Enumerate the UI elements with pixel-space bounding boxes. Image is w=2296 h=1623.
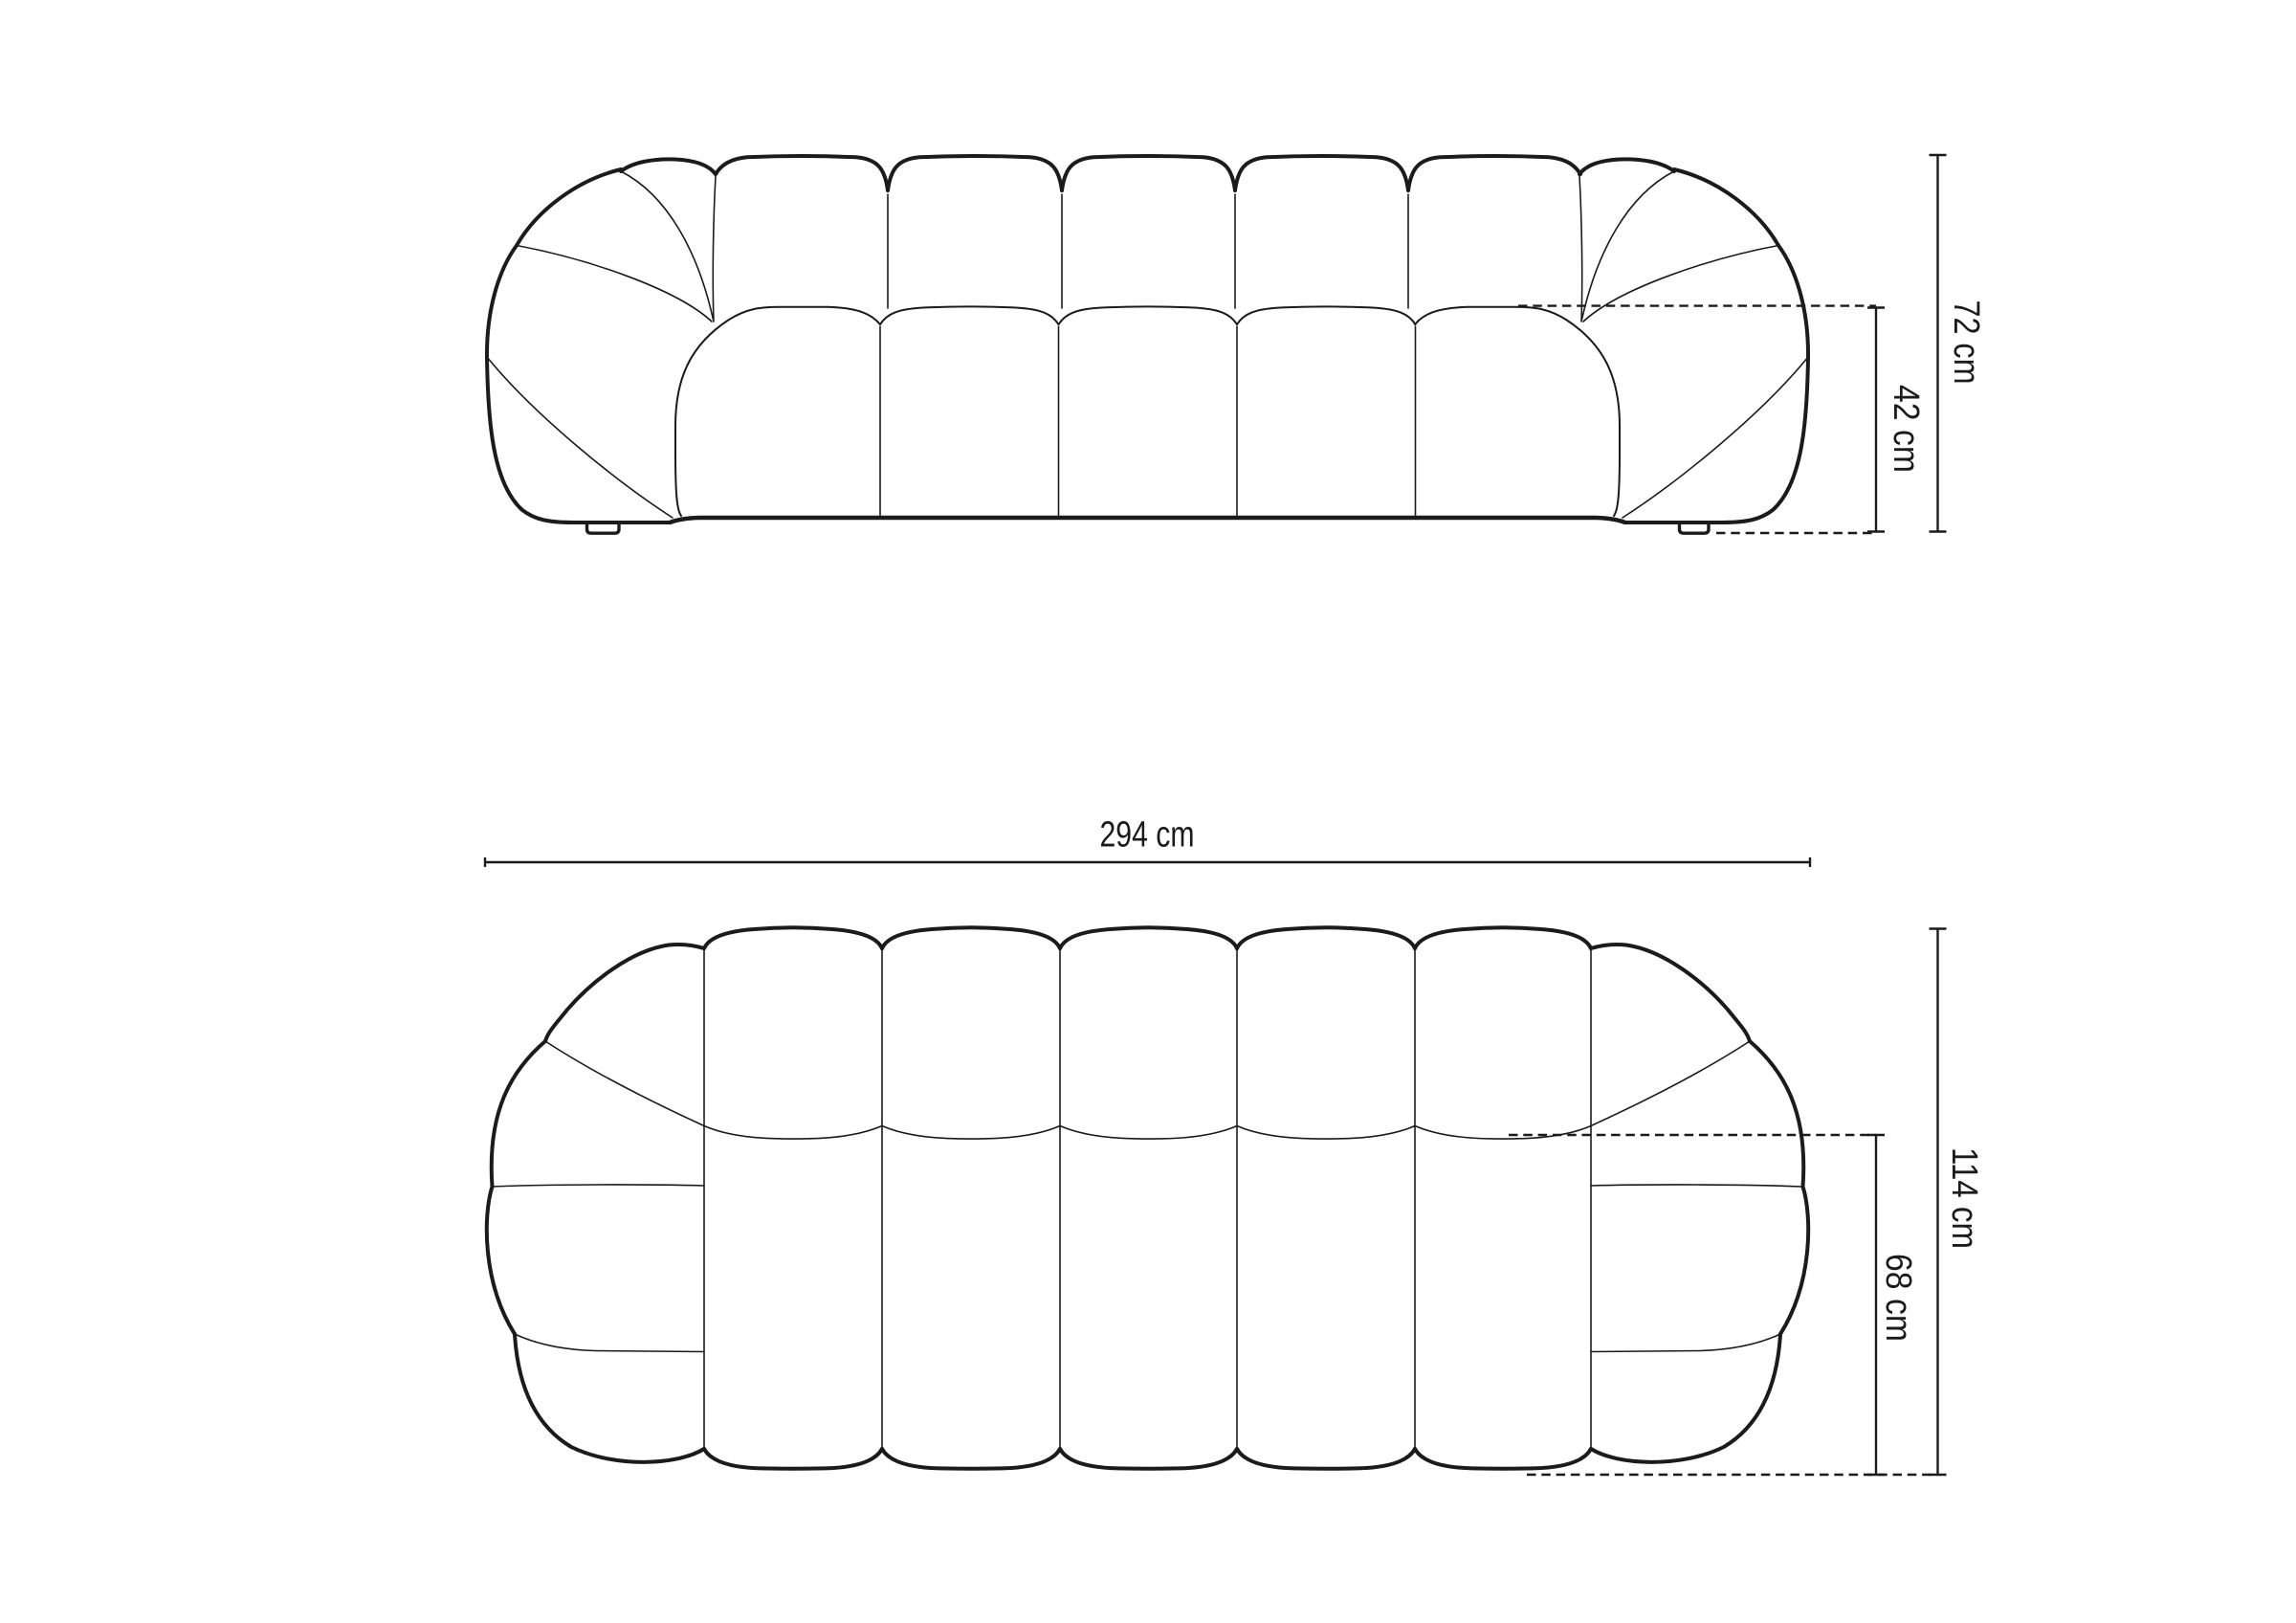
svg-text:42 cm: 42 cm	[1886, 385, 1926, 473]
svg-text:68 cm: 68 cm	[1878, 1254, 1918, 1342]
svg-text:294 cm: 294 cm	[1100, 815, 1195, 856]
svg-text:114 cm: 114 cm	[1944, 1147, 1984, 1249]
svg-text:72 cm: 72 cm	[1946, 300, 1986, 385]
